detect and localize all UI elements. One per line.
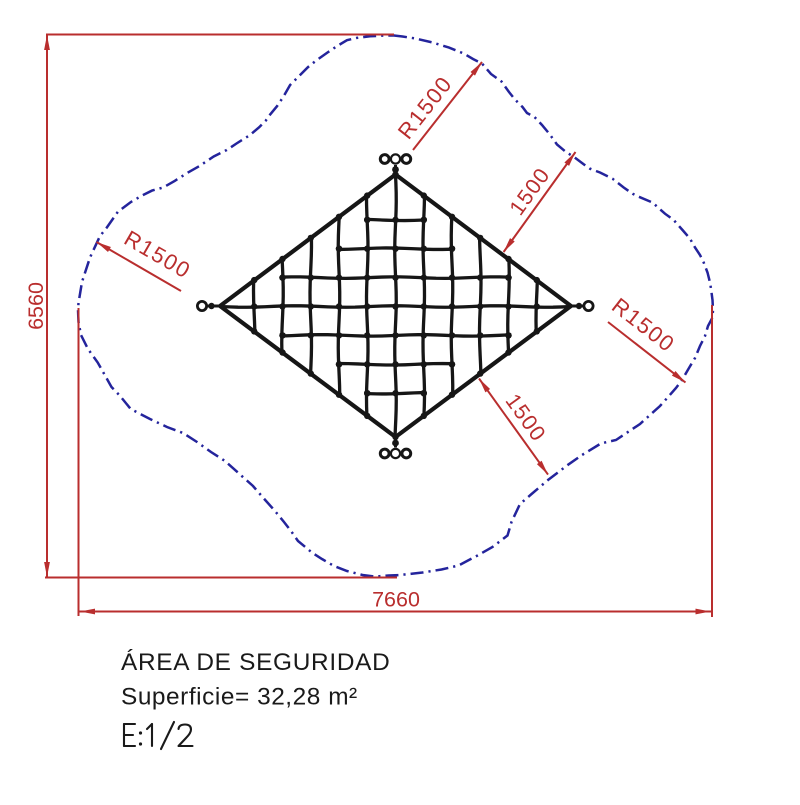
svg-text:Superficie= 32,28 m²: Superficie= 32,28 m² xyxy=(121,684,358,711)
svg-text:6560: 6560 xyxy=(24,282,48,330)
svg-text:7660: 7660 xyxy=(372,588,420,612)
svg-text:ÁREA DE SEGURIDAD: ÁREA DE SEGURIDAD xyxy=(121,649,390,676)
